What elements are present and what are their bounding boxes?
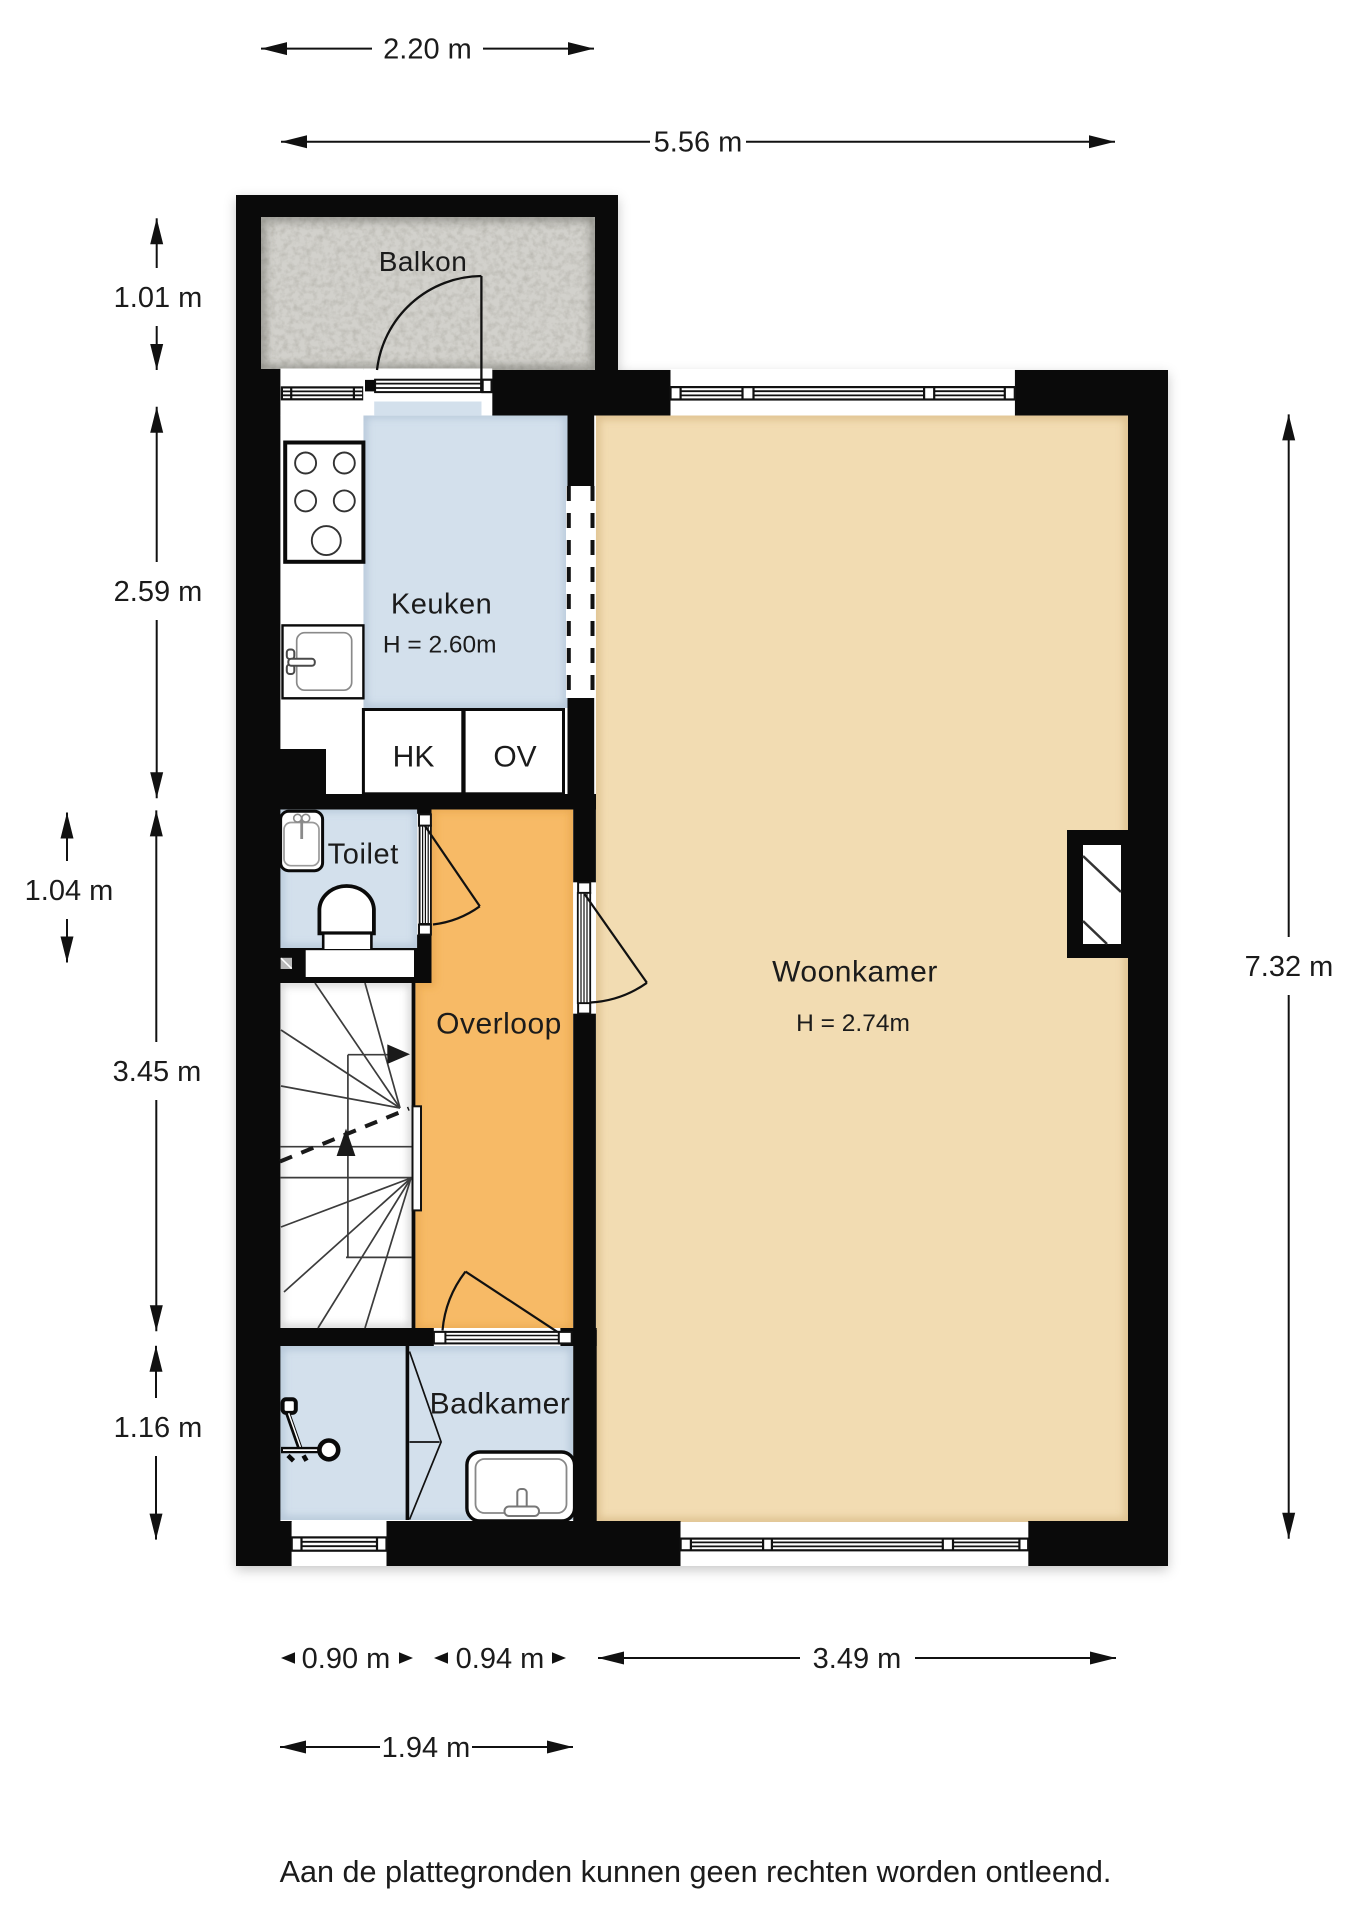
svg-text:Keuken: Keuken <box>391 589 492 621</box>
svg-text:1.01 m: 1.01 m <box>114 282 203 314</box>
svg-text:Overloop: Overloop <box>436 1007 562 1040</box>
svg-text:Badkamer: Badkamer <box>430 1387 571 1420</box>
svg-text:H = 2.74m: H = 2.74m <box>796 1010 910 1037</box>
svg-text:OV: OV <box>493 741 536 774</box>
svg-text:1.16 m: 1.16 m <box>114 1412 203 1444</box>
svg-text:0.90 m: 0.90 m <box>302 1643 391 1675</box>
svg-text:1.04 m: 1.04 m <box>25 875 114 907</box>
svg-text:3.49 m: 3.49 m <box>813 1643 902 1675</box>
svg-text:Balkon: Balkon <box>379 246 468 277</box>
svg-text:5.56 m: 5.56 m <box>654 127 743 159</box>
svg-text:2.59 m: 2.59 m <box>114 576 203 608</box>
svg-text:3.45 m: 3.45 m <box>113 1056 202 1088</box>
svg-text:H = 2.60m: H = 2.60m <box>383 632 497 659</box>
svg-text:7.32 m: 7.32 m <box>1245 951 1334 983</box>
svg-text:2.20 m: 2.20 m <box>383 34 472 66</box>
svg-text:Aan de plattegronden kunnen ge: Aan de plattegronden kunnen geen rechten… <box>280 1855 1112 1889</box>
svg-text:1.94 m: 1.94 m <box>382 1732 471 1764</box>
svg-text:Woonkamer: Woonkamer <box>772 956 938 989</box>
svg-text:0.94 m: 0.94 m <box>456 1643 545 1675</box>
svg-text:HK: HK <box>393 741 435 774</box>
svg-text:Toilet: Toilet <box>328 838 399 870</box>
